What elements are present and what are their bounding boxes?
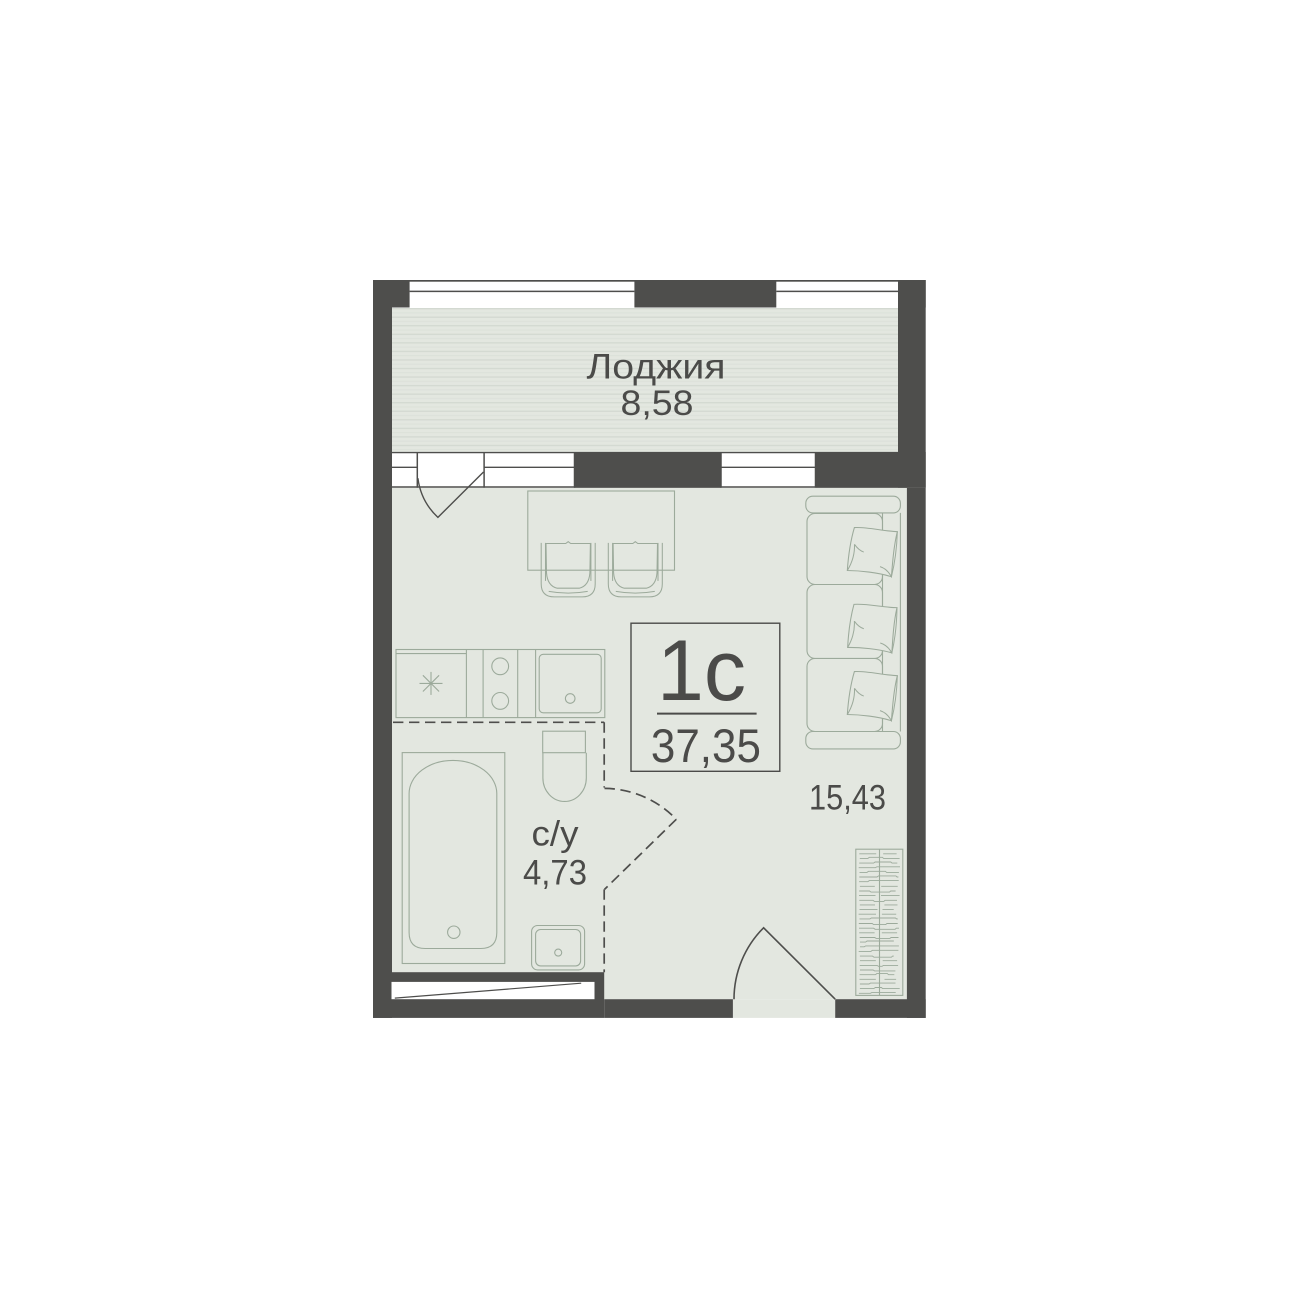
svg-text:с/у: с/у xyxy=(532,814,579,854)
svg-text:1с: 1с xyxy=(657,623,746,719)
svg-text:4,73: 4,73 xyxy=(523,853,587,893)
svg-text:Лоджия: Лоджия xyxy=(587,347,726,387)
svg-text:37,35: 37,35 xyxy=(651,720,761,773)
svg-text:8,58: 8,58 xyxy=(621,383,694,423)
svg-text:15,43: 15,43 xyxy=(809,778,886,818)
